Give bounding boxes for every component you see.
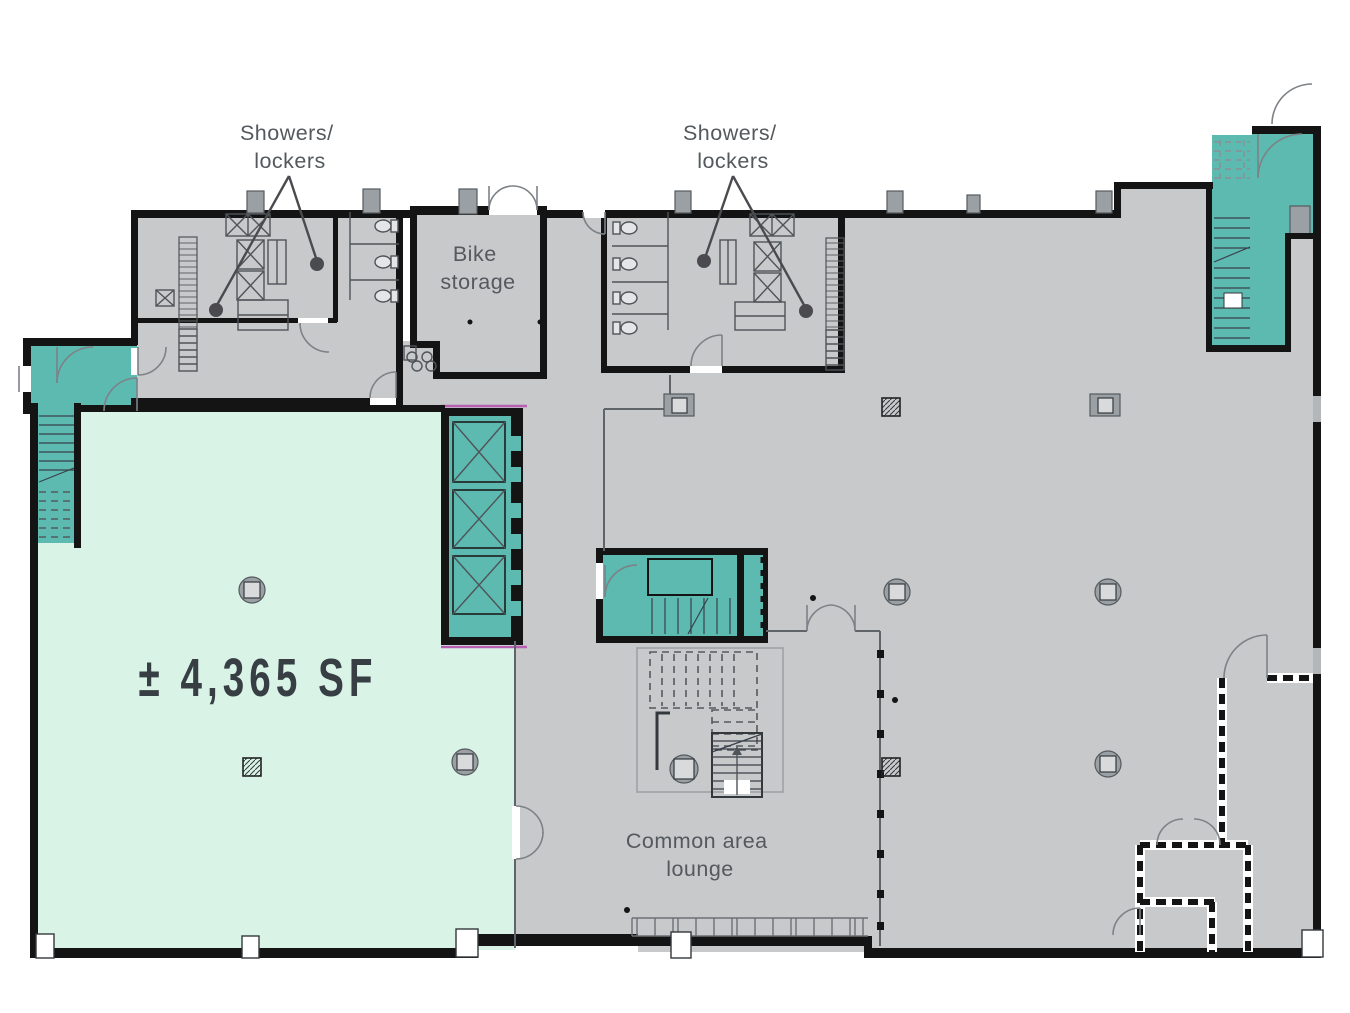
toilet (375, 256, 398, 268)
elevator-car (453, 556, 505, 614)
label-showers-lockers-west: Showers/ lockers (240, 121, 340, 173)
stair-central (596, 548, 768, 643)
elevator-car (453, 490, 505, 548)
window (1313, 648, 1321, 674)
lockers (826, 238, 844, 330)
entry-vestibule (23, 340, 137, 412)
equipment-box (1290, 206, 1310, 236)
toilet (375, 220, 398, 232)
toilet (613, 258, 637, 270)
elevator-bank (441, 406, 527, 647)
label-showers-lockers-east: Showers/ lockers (683, 121, 783, 173)
floor-plan-svg: Showers/ lockers Showers/ lockers Bike s… (0, 0, 1350, 1013)
toilet (613, 322, 637, 334)
toilet (613, 292, 637, 304)
floor-plan: Showers/ lockers Showers/ lockers Bike s… (0, 0, 1350, 1013)
lockers (179, 237, 197, 329)
toilet (375, 290, 398, 302)
elevator-car (453, 422, 505, 482)
label-suite-area: ± 4,365 SF (138, 648, 377, 708)
svg-text:± 4,365 SF: ± 4,365 SF (138, 648, 377, 708)
stair-west-shaft (38, 410, 74, 543)
toilet (613, 222, 637, 234)
window (1313, 396, 1321, 422)
